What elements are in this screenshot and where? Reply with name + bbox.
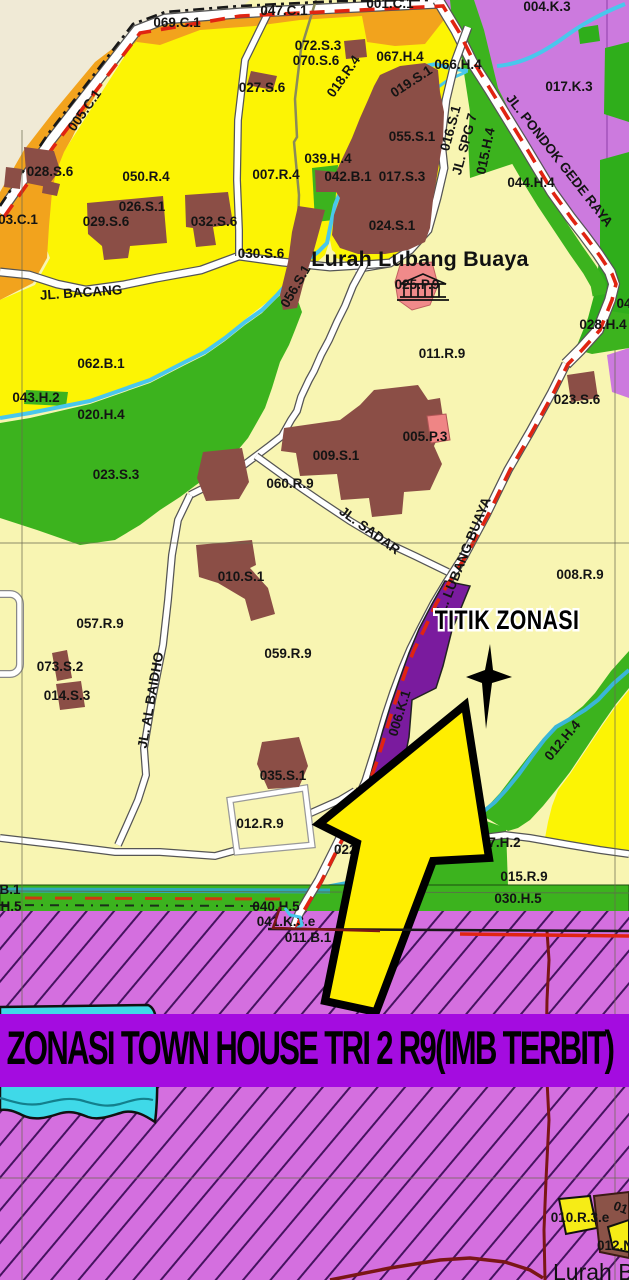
svg-text:040.H.5: 040.H.5: [252, 899, 300, 914]
svg-text:007.R.4: 007.R.4: [252, 167, 300, 182]
svg-text:069.C.1: 069.C.1: [153, 15, 201, 30]
svg-text:005.P.3: 005.P.3: [403, 429, 448, 444]
svg-text:070.S.6: 070.S.6: [293, 53, 340, 68]
svg-text:010.S.1: 010.S.1: [218, 569, 265, 584]
svg-text:060.R.9: 060.R.9: [266, 476, 313, 491]
svg-text:027.S.6: 027.S.6: [239, 80, 286, 95]
svg-text:030.H.5: 030.H.5: [494, 891, 542, 906]
svg-text:012.R.9: 012.R.9: [236, 816, 283, 831]
svg-text:010.R.3.e: 010.R.3.e: [551, 1210, 610, 1225]
svg-text:020.H.4: 020.H.4: [77, 407, 125, 422]
svg-text:03.C.1: 03.C.1: [0, 212, 38, 227]
svg-text:043.H.2: 043.H.2: [12, 390, 59, 405]
svg-text:055.S.1: 055.S.1: [389, 129, 436, 144]
svg-text:001.C.1: 001.C.1: [366, 0, 414, 11]
svg-text:Lurah B: Lurah B: [553, 1259, 629, 1280]
svg-text:035.S.1: 035.S.1: [260, 768, 307, 783]
svg-text:059.R.9: 059.R.9: [264, 646, 311, 661]
svg-text:050.R.4: 050.R.4: [122, 169, 170, 184]
svg-text:066.H.4: 066.H.4: [434, 57, 482, 72]
svg-text:067.H.4: 067.H.4: [376, 49, 424, 64]
svg-text:073.S.2: 073.S.2: [37, 659, 84, 674]
svg-text:023.S.3: 023.S.3: [93, 467, 140, 482]
svg-text:004.K.3: 004.K.3: [523, 0, 571, 14]
svg-text:057.R.9: 057.R.9: [76, 616, 123, 631]
svg-text:041.K.3.e: 041.K.3.e: [257, 914, 316, 929]
svg-text:009.S.1: 009.S.1: [313, 448, 360, 463]
svg-text:042.B.1: 042.B.1: [324, 169, 372, 184]
svg-text:B.1: B.1: [0, 882, 21, 897]
svg-text:025.P.9: 025.P.9: [395, 277, 440, 292]
svg-text:012.N: 012.N: [597, 1238, 629, 1253]
svg-text:039.H.4: 039.H.4: [304, 151, 352, 166]
svg-text:H.5: H.5: [0, 899, 22, 914]
svg-text:014.S.3: 014.S.3: [44, 688, 91, 703]
svg-text:044.H.4: 044.H.4: [507, 175, 555, 190]
svg-text:008.R.9: 008.R.9: [556, 567, 603, 582]
svg-text:028.H.4: 028.H.4: [579, 317, 627, 332]
svg-text:023.S.6: 023.S.6: [554, 392, 601, 407]
svg-text:017.S.3: 017.S.3: [379, 169, 426, 184]
svg-text:030.S.6: 030.S.6: [238, 246, 285, 261]
svg-text:029.S.6: 029.S.6: [83, 214, 130, 229]
svg-text:024.S.1: 024.S.1: [369, 218, 416, 233]
svg-text:062.B.1: 062.B.1: [77, 356, 125, 371]
svg-text:011.B.1: 011.B.1: [285, 930, 332, 945]
svg-text:047.C.1: 047.C.1: [260, 3, 308, 18]
svg-text:04: 04: [616, 296, 629, 311]
svg-text:017.K.3: 017.K.3: [545, 79, 593, 94]
svg-text:011.R.9: 011.R.9: [419, 346, 466, 361]
svg-text:032.S.6: 032.S.6: [191, 214, 238, 229]
svg-text:026.S.1: 026.S.1: [119, 199, 166, 214]
svg-text:Lurah Lubang Buaya: Lurah Lubang Buaya: [311, 247, 529, 271]
svg-text:072.S.3: 072.S.3: [295, 38, 342, 53]
svg-text:028.S.6: 028.S.6: [27, 164, 74, 179]
svg-text:TITIK ZONASI: TITIK ZONASI: [435, 606, 580, 636]
svg-text:ZONASI TOWN HOUSE TRI 2 R9(IMB: ZONASI TOWN HOUSE TRI 2 R9(IMB TERBIT): [7, 1023, 614, 1075]
svg-text:015.R.9: 015.R.9: [500, 869, 547, 884]
